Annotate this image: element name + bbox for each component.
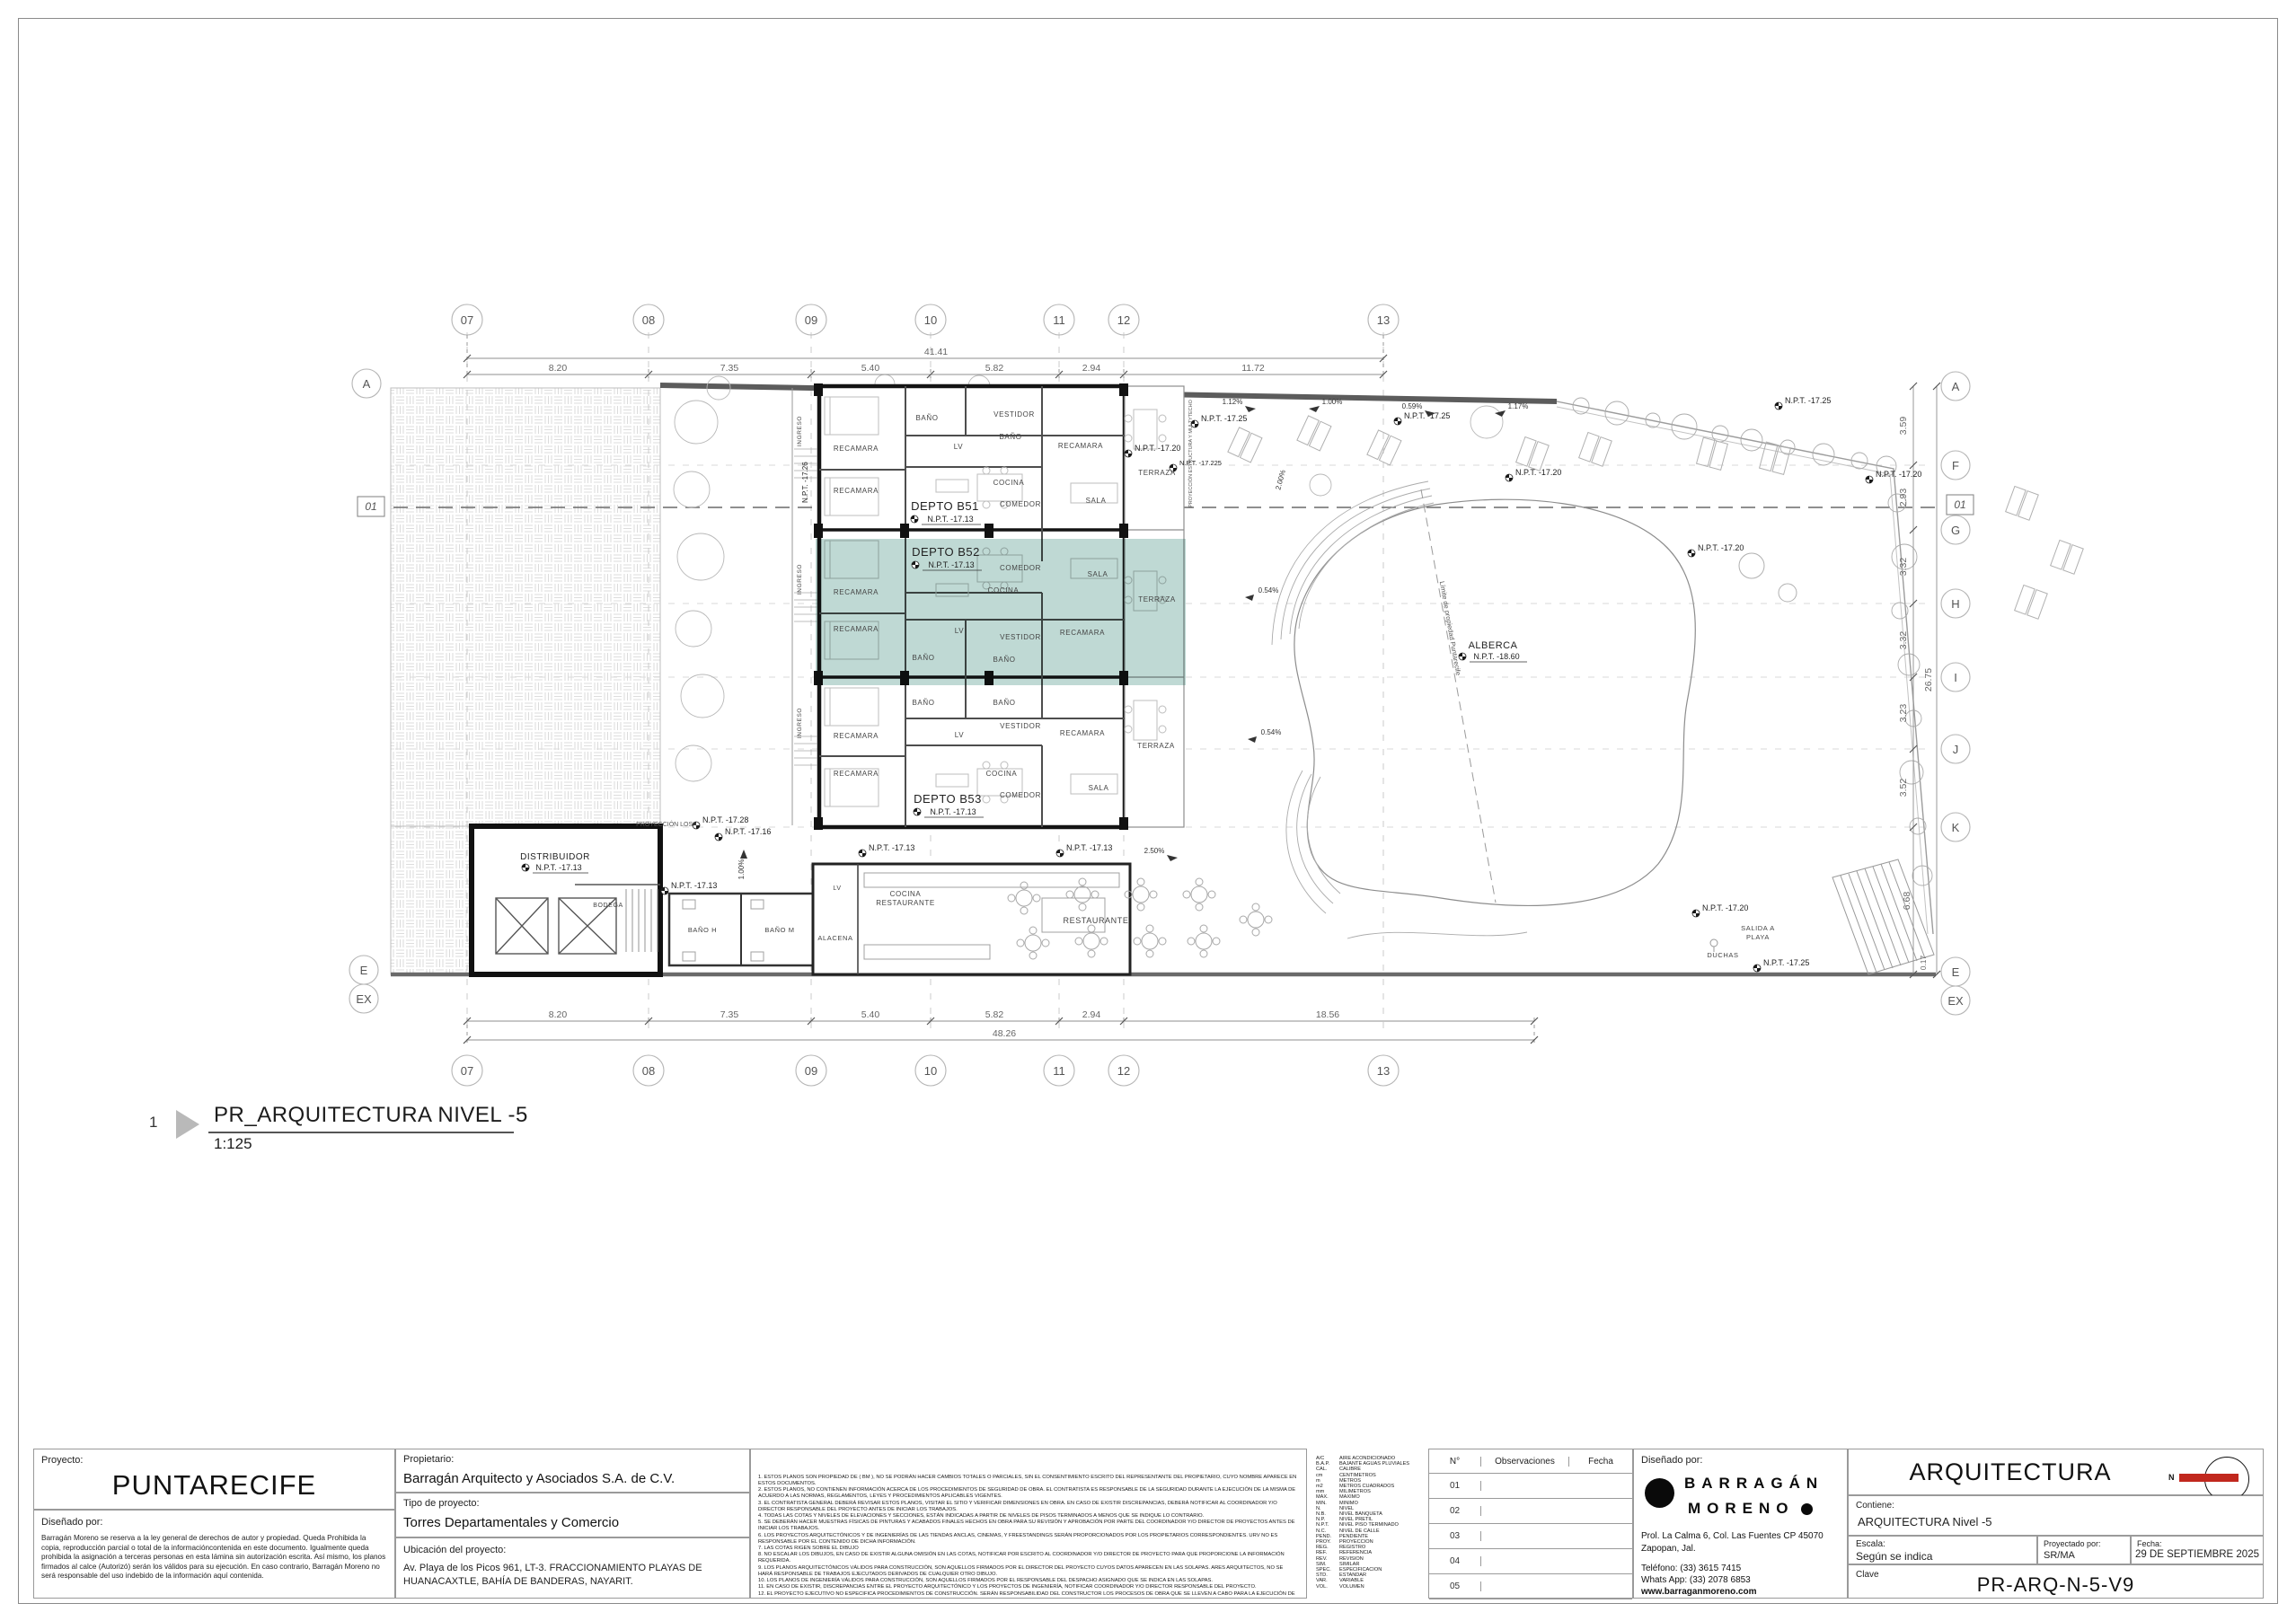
slope: 2.50% — [1144, 847, 1165, 855]
dim: 3.23 — [1898, 704, 1909, 723]
revision-row: 03 — [1429, 1524, 1632, 1549]
general-note: 3. EL CONTRATISTA GENERAL DEBERÁ REVISAR… — [758, 1501, 1299, 1513]
abbreviation-full: VOLUMEN — [1339, 1584, 1364, 1590]
grid-col: 08 — [642, 313, 655, 327]
grid-row: E — [1952, 965, 1960, 979]
room-label-bano-h: BAÑO H — [688, 926, 717, 934]
designer-web: www.barraganmoreno.com — [1641, 1586, 1757, 1599]
view-scale: 1:125 — [214, 1135, 252, 1153]
unit-label-b53: DEPTO B53 — [914, 792, 982, 806]
room-label-recamara: RECAMARA — [834, 625, 879, 633]
room-label-bano: BAÑO — [912, 654, 934, 662]
revision-row: 05 — [1429, 1574, 1632, 1599]
level-marker: N.P.T. -17.20 — [1515, 468, 1561, 477]
abbreviation-row: VOL.VOLUMEN — [1316, 1584, 1427, 1590]
grid-col: 13 — [1377, 313, 1390, 327]
level-marker: N.P.T. -17.13 — [671, 881, 717, 890]
unit-level-b53: N.P.T. -17.13 — [930, 807, 976, 816]
general-note: 12. EL PROYECTO EJECUTIVO NO ESPECIFICA … — [758, 1591, 1299, 1599]
titleblock-abbreviations: A/CAIRE ACONDICIONADOB.A.P.BAJANTE AGUAS… — [1316, 1456, 1427, 1596]
dim-total-right: 26.75 — [1923, 668, 1934, 692]
disenado-label: Diseñado por: — [41, 1517, 103, 1528]
dim: 6.68 — [1902, 892, 1912, 911]
slope: 1.12% — [1223, 398, 1243, 406]
dim: 7.35 — [720, 1009, 739, 1020]
room-label-vestidor: VESTIDOR — [993, 410, 1035, 418]
revision-number: 02 — [1429, 1506, 1481, 1516]
grid-row: EX — [356, 992, 372, 1006]
room-label-terraza: TERRAZA — [1137, 742, 1175, 750]
room-label-recamara: RECAMARA — [834, 732, 879, 740]
grid-col: 09 — [805, 313, 817, 327]
escala-box: Escala: Según se indica — [1848, 1536, 2037, 1564]
revision-table: N° Observaciones Fecha 01 02 03 04 — [1428, 1449, 1633, 1599]
room-label-sala: SALA — [1086, 497, 1107, 505]
slope: 1.00% — [737, 859, 746, 880]
fecha-label: Fecha: — [2137, 1539, 2162, 1548]
grid-row: A — [1952, 380, 1960, 393]
unit-level-b52: N.P.T. -17.13 — [928, 560, 974, 569]
room-label-bano: BAÑO — [912, 699, 934, 707]
titleblock-tipo-box: Tipo de proyecto: Torres Departamentales… — [395, 1493, 750, 1537]
proyectado-value: SR/MA — [2044, 1550, 2075, 1561]
proyecto-name: PUNTARECIFE — [34, 1469, 394, 1502]
slope: 0.54% — [1258, 586, 1279, 595]
level-marker: N.P.T. -17.13 — [869, 843, 914, 852]
revision-number: 04 — [1429, 1556, 1481, 1566]
room-label-bano: BAÑO — [993, 656, 1015, 664]
escala-label: Escala: — [1856, 1539, 1885, 1549]
dim: 2.94 — [1082, 363, 1101, 374]
titleblock-notes-box: 1. ESTOS PLANOS SON PROPIEDAD DE ( BM ),… — [750, 1449, 1307, 1599]
room-label-bano: BAÑO — [999, 433, 1021, 441]
ubicacion-value: Av. Playa de los Picos 961, LT-3. FRACCI… — [403, 1562, 736, 1589]
grid-col: 07 — [461, 1064, 473, 1078]
general-note: 2. ESTOS PLANOS, NO CONTIENEN INFORMACIÓ… — [758, 1487, 1299, 1500]
logo-line1: BARRAGÁN — [1684, 1475, 1824, 1493]
room-label-lv: LV — [955, 731, 964, 739]
level-marker: N.P.T. -17.28 — [702, 815, 748, 824]
room-label-lv: LV — [833, 885, 841, 892]
designer-whatsapp: Whats App: (33) 2078 6853 — [1641, 1574, 1751, 1587]
designer-address1: Prol. La Calma 6, Col. Las Fuentes CP 45… — [1641, 1530, 1824, 1543]
revision-col-fecha: Fecha — [1569, 1457, 1632, 1467]
room-label-cocina: COCINA — [988, 586, 1020, 595]
room-label-cocina: COCINA — [890, 890, 922, 898]
slope: 1.00% — [1322, 398, 1343, 406]
clave-value: PR-ARQ-N-5-V9 — [1849, 1573, 2263, 1597]
grid-row: F — [1952, 459, 1959, 472]
room-label-salida-playa: SALIDA A — [1741, 924, 1775, 932]
grid-row: E — [360, 964, 368, 977]
view-title-underline — [208, 1132, 514, 1133]
dim: 11.72 — [1241, 363, 1265, 374]
room-label-bano-m: BAÑO M — [764, 926, 794, 934]
level-marker: N.P.T. -17.16 — [725, 827, 771, 836]
grid-col: 10 — [924, 313, 937, 327]
unit-level-distribuidor: N.P.T. -17.13 — [535, 863, 581, 872]
titleblock-propietario-box: Propietario: Barragán Arquitecto y Asoci… — [395, 1449, 750, 1493]
general-note: 4. TODAS LAS COTAS Y NIVELES DE ELEVACIO… — [758, 1513, 1299, 1520]
room-label-recamara: RECAMARA — [834, 770, 879, 778]
pool — [1272, 481, 1695, 938]
unit-label-alberca: ALBERCA — [1469, 640, 1518, 651]
view-number: 1 — [149, 1114, 157, 1132]
logo-mark — [1645, 1478, 1674, 1508]
revision-col-obs: Observaciones — [1481, 1457, 1569, 1467]
level-marker: N.P.T. -17.26 — [801, 462, 809, 503]
tipo-value: Torres Departamentales y Comercio — [403, 1515, 619, 1530]
designer-address2: Zapopan, Jal. — [1641, 1543, 1696, 1555]
room-label-lv: LV — [955, 627, 964, 635]
dim: 7.35 — [720, 363, 739, 374]
level-marker: N.P.T. -17.20 — [1702, 903, 1748, 912]
dim: 18.56 — [1316, 1009, 1339, 1020]
dim: 3.52 — [1898, 779, 1909, 797]
titleblock-proyecto-box: Proyecto: PUNTARECIFE — [33, 1449, 395, 1510]
room-label-duchas: DUCHAS — [1707, 951, 1738, 959]
dim: 8.20 — [549, 1009, 568, 1020]
general-note: 7. LAS COTAS RIGEN SOBRE EL DIBUJO — [758, 1546, 1299, 1552]
room-label-alacena: ALACENA — [817, 934, 852, 942]
room-label-vestidor: VESTIDOR — [1000, 722, 1041, 730]
room-label-terraza: TERRAZA — [1138, 595, 1176, 603]
dim: 8.20 — [549, 363, 568, 374]
grid-col: 09 — [805, 1064, 817, 1078]
floor-plan-drawing: 07 08 09 10 11 12 13 07 08 09 10 11 12 1… — [0, 0, 2296, 1448]
contiene-value: ARQUITECTURA Nivel -5 — [1858, 1515, 1992, 1528]
grid-col: 11 — [1053, 1064, 1065, 1078]
abbreviation-code: VOL. — [1316, 1584, 1339, 1590]
room-label-lv: LV — [954, 443, 963, 451]
room-label-restaurante: RESTAURANTE — [1064, 916, 1129, 925]
room-label-bodega: BODEGA — [593, 903, 623, 909]
legal-text: Barragán Moreno se reserva a la ley gene… — [41, 1534, 387, 1581]
beach-access — [1710, 859, 1934, 974]
grid-row: G — [1951, 524, 1960, 537]
dim: 0.17 — [1919, 955, 1928, 970]
loungers — [1228, 416, 2083, 619]
dim: 5.82 — [985, 363, 1004, 374]
annotation-proyeccion-estructura: PROYECCIÓN ESTRUCTURA Y MULTYTECHO — [1188, 399, 1194, 507]
grid-col: 10 — [924, 1064, 937, 1078]
room-label-vestidor: VESTIDOR — [1000, 633, 1041, 641]
dim: 5.40 — [861, 363, 880, 374]
dim: 3.59 — [1898, 417, 1909, 436]
room-label-recamara: RECAMARA — [834, 487, 879, 495]
room-label-recamara: RECAMARA — [834, 445, 879, 453]
discipline-title: ARQUITECTURA — [1849, 1458, 2172, 1486]
general-note: 9. LOS PLANOS ARQUITECTÓNICOS VÁLIDOS PA… — [758, 1565, 1299, 1578]
designer-box: Diseñado por: BARRAGÁN MORENO Prol. La C… — [1633, 1449, 1848, 1599]
grid-row: I — [1954, 671, 1957, 684]
room-label-ingreso: INGRESO — [797, 416, 803, 446]
grid-col: 12 — [1117, 1064, 1130, 1078]
grid-col: 08 — [642, 1064, 655, 1078]
room-label-ingreso: INGRESO — [797, 564, 803, 595]
dim: 5.40 — [861, 1009, 880, 1020]
grid-row: H — [1951, 597, 1959, 611]
revision-number: 05 — [1429, 1581, 1481, 1591]
revision-row: 02 — [1429, 1499, 1632, 1524]
contiene-label: Contiene: — [1856, 1501, 1894, 1511]
revision-number: 03 — [1429, 1531, 1481, 1541]
room-label-cocina: COCINA — [993, 479, 1025, 487]
room-label-salida-playa: PLAYA — [1746, 933, 1770, 941]
room-label-sala: SALA — [1089, 784, 1109, 792]
general-note: 10. LOS PLANOS DE INGENIERÍA VÁLIDOS PAR… — [758, 1578, 1299, 1584]
dim: 3.32 — [1898, 558, 1909, 577]
unit-level-b51: N.P.T. -17.13 — [927, 515, 973, 524]
level-marker: N.P.T. -17.13 — [1066, 843, 1112, 852]
grid-col: 11 — [1053, 313, 1065, 327]
revision-row: 04 — [1429, 1549, 1632, 1574]
contiene-box: Contiene: ARQUITECTURA Nivel -5 — [1848, 1495, 2264, 1536]
revision-number: 01 — [1429, 1481, 1481, 1491]
logo-line2: MORENO — [1688, 1500, 1795, 1518]
dim-total-bottom: 48.26 — [993, 1028, 1016, 1039]
room-label-ingreso: INGRESO — [797, 708, 803, 738]
general-note: 11. EN CASO DE EXISTIR, DISCREPANCIAS EN… — [758, 1584, 1299, 1590]
dim: 2.94 — [1082, 1009, 1101, 1020]
propietario-value: Barragán Arquitecto y Asociados S.A. de … — [403, 1471, 675, 1486]
room-label-comedor: COMEDOR — [1000, 791, 1041, 799]
room-label-recamara: RECAMARA — [1060, 729, 1105, 737]
room-label-comedor: COMEDOR — [1000, 564, 1041, 572]
grid-row: EX — [1947, 994, 1964, 1008]
discipline-box: ARQUITECTURA N — [1848, 1449, 2264, 1495]
general-note: 1. ESTOS PLANOS SON PROPIEDAD DE ( BM ),… — [758, 1475, 1299, 1487]
view-title-text: PR_ARQUITECTURA NIVEL -5 — [214, 1103, 528, 1128]
room-label-recamara: RECAMARA — [834, 588, 879, 596]
room-label-restaurante: RESTAURANTE — [876, 899, 935, 907]
tipo-label: Tipo de proyecto: — [403, 1498, 480, 1509]
dim: 3.32 — [1898, 631, 1909, 650]
room-label-cocina: COCINA — [986, 770, 1018, 778]
annotation-limite-propiedad: Límite de propiedad Puntarecife — [1438, 580, 1462, 675]
level-marker: N.P.T. -17.25 — [1201, 414, 1247, 423]
level-marker: N.P.T. -17.225 — [1179, 459, 1222, 467]
level-marker: N.P.T. -17.25 — [1763, 958, 1809, 967]
escala-value: Según se indica — [1856, 1550, 1932, 1563]
drawing-sheet: 07 08 09 10 11 12 13 07 08 09 10 11 12 1… — [0, 0, 2296, 1621]
section-marker: 01 — [365, 500, 376, 513]
dim: 2.93 — [1898, 489, 1909, 507]
clave-box: Clave PR-ARQ-N-5-V9 — [1848, 1564, 2264, 1599]
north-arrow-bar — [2179, 1474, 2239, 1482]
ubicacion-label: Ubicación del proyecto: — [403, 1545, 506, 1555]
general-note: 6. LOS PROYECTOS ARQUITECTÓNICOS Y DE IN… — [758, 1533, 1299, 1546]
grid-col: 12 — [1117, 313, 1130, 327]
annotation-proyeccion-losa: PROYECCIÓN LOSA — [636, 820, 697, 828]
fecha-box: Fecha: 29 DE SEPTIEMBRE 2025 — [2131, 1536, 2264, 1564]
logo-dot — [1801, 1503, 1813, 1515]
designer-label: Diseñado por: — [1641, 1455, 1703, 1466]
slope: 0.59% — [1402, 402, 1423, 410]
room-label-recamara: RECAMARA — [1058, 442, 1103, 450]
slope: 2.00% — [1274, 469, 1287, 490]
unit-label-distribuidor: DISTRIBUIDOR — [520, 852, 590, 862]
view-title-triangle-icon — [176, 1110, 199, 1139]
section-marker: 01 — [1954, 498, 1965, 511]
unit-label-b52: DEPTO B52 — [912, 545, 980, 559]
titleblock-ubicacion-box: Ubicación del proyecto: Av. Playa de los… — [395, 1537, 750, 1599]
dim-total-top: 41.41 — [924, 347, 948, 357]
north-letter: N — [2168, 1473, 2175, 1482]
grid-col: 07 — [461, 313, 473, 327]
slope: 1.17% — [1508, 402, 1529, 410]
room-label-sala: SALA — [1088, 570, 1108, 578]
proyectado-label: Proyectado por: — [2044, 1539, 2101, 1548]
unit-label-b51: DEPTO B51 — [911, 499, 979, 513]
slope: 0.54% — [1261, 728, 1282, 736]
room-label-recamara: RECAMARA — [1060, 629, 1105, 637]
level-marker: N.P.T. -17.20 — [1698, 543, 1744, 552]
grid-row: J — [1953, 743, 1959, 756]
proyectado-box: Proyectado por: SR/MA — [2037, 1536, 2131, 1564]
revision-row: 01 — [1429, 1474, 1632, 1499]
grid-row: A — [363, 377, 371, 391]
designer-phone: Teléfono: (33) 3615 7415 — [1641, 1563, 1741, 1575]
room-label-bano: BAÑO — [915, 414, 938, 422]
level-marker: N.P.T. -17.25 — [1785, 396, 1831, 405]
general-note: 5. SE DEBERÁN HACER MUESTRAS FÍSICAS DE … — [758, 1520, 1299, 1532]
fecha-value: 29 DE SEPTIEMBRE 2025 — [2132, 1549, 2263, 1560]
level-marker: N.P.T. -17.20 — [1135, 444, 1180, 453]
grid-row: K — [1952, 821, 1960, 834]
proyecto-label: Proyecto: — [41, 1455, 83, 1466]
grid-col: 13 — [1377, 1064, 1390, 1078]
unit-level-alberca: N.P.T. -18.60 — [1473, 652, 1519, 661]
revision-col-num: N° — [1429, 1457, 1481, 1467]
room-label-comedor: COMEDOR — [1000, 500, 1041, 508]
revision-table-header: N° Observaciones Fecha — [1429, 1449, 1632, 1474]
general-note: 8. NO ESCALAR LOS DIBUJOS, EN CASO DE EX… — [758, 1552, 1299, 1564]
propietario-label: Propietario: — [403, 1454, 454, 1465]
level-marker: N.P.T. -17.20 — [1876, 470, 1921, 479]
dim: 5.82 — [985, 1009, 1004, 1020]
room-label-bano: BAÑO — [993, 699, 1015, 707]
titleblock-legal-box: Diseñado por: Barragán Moreno se reserva… — [33, 1510, 395, 1599]
